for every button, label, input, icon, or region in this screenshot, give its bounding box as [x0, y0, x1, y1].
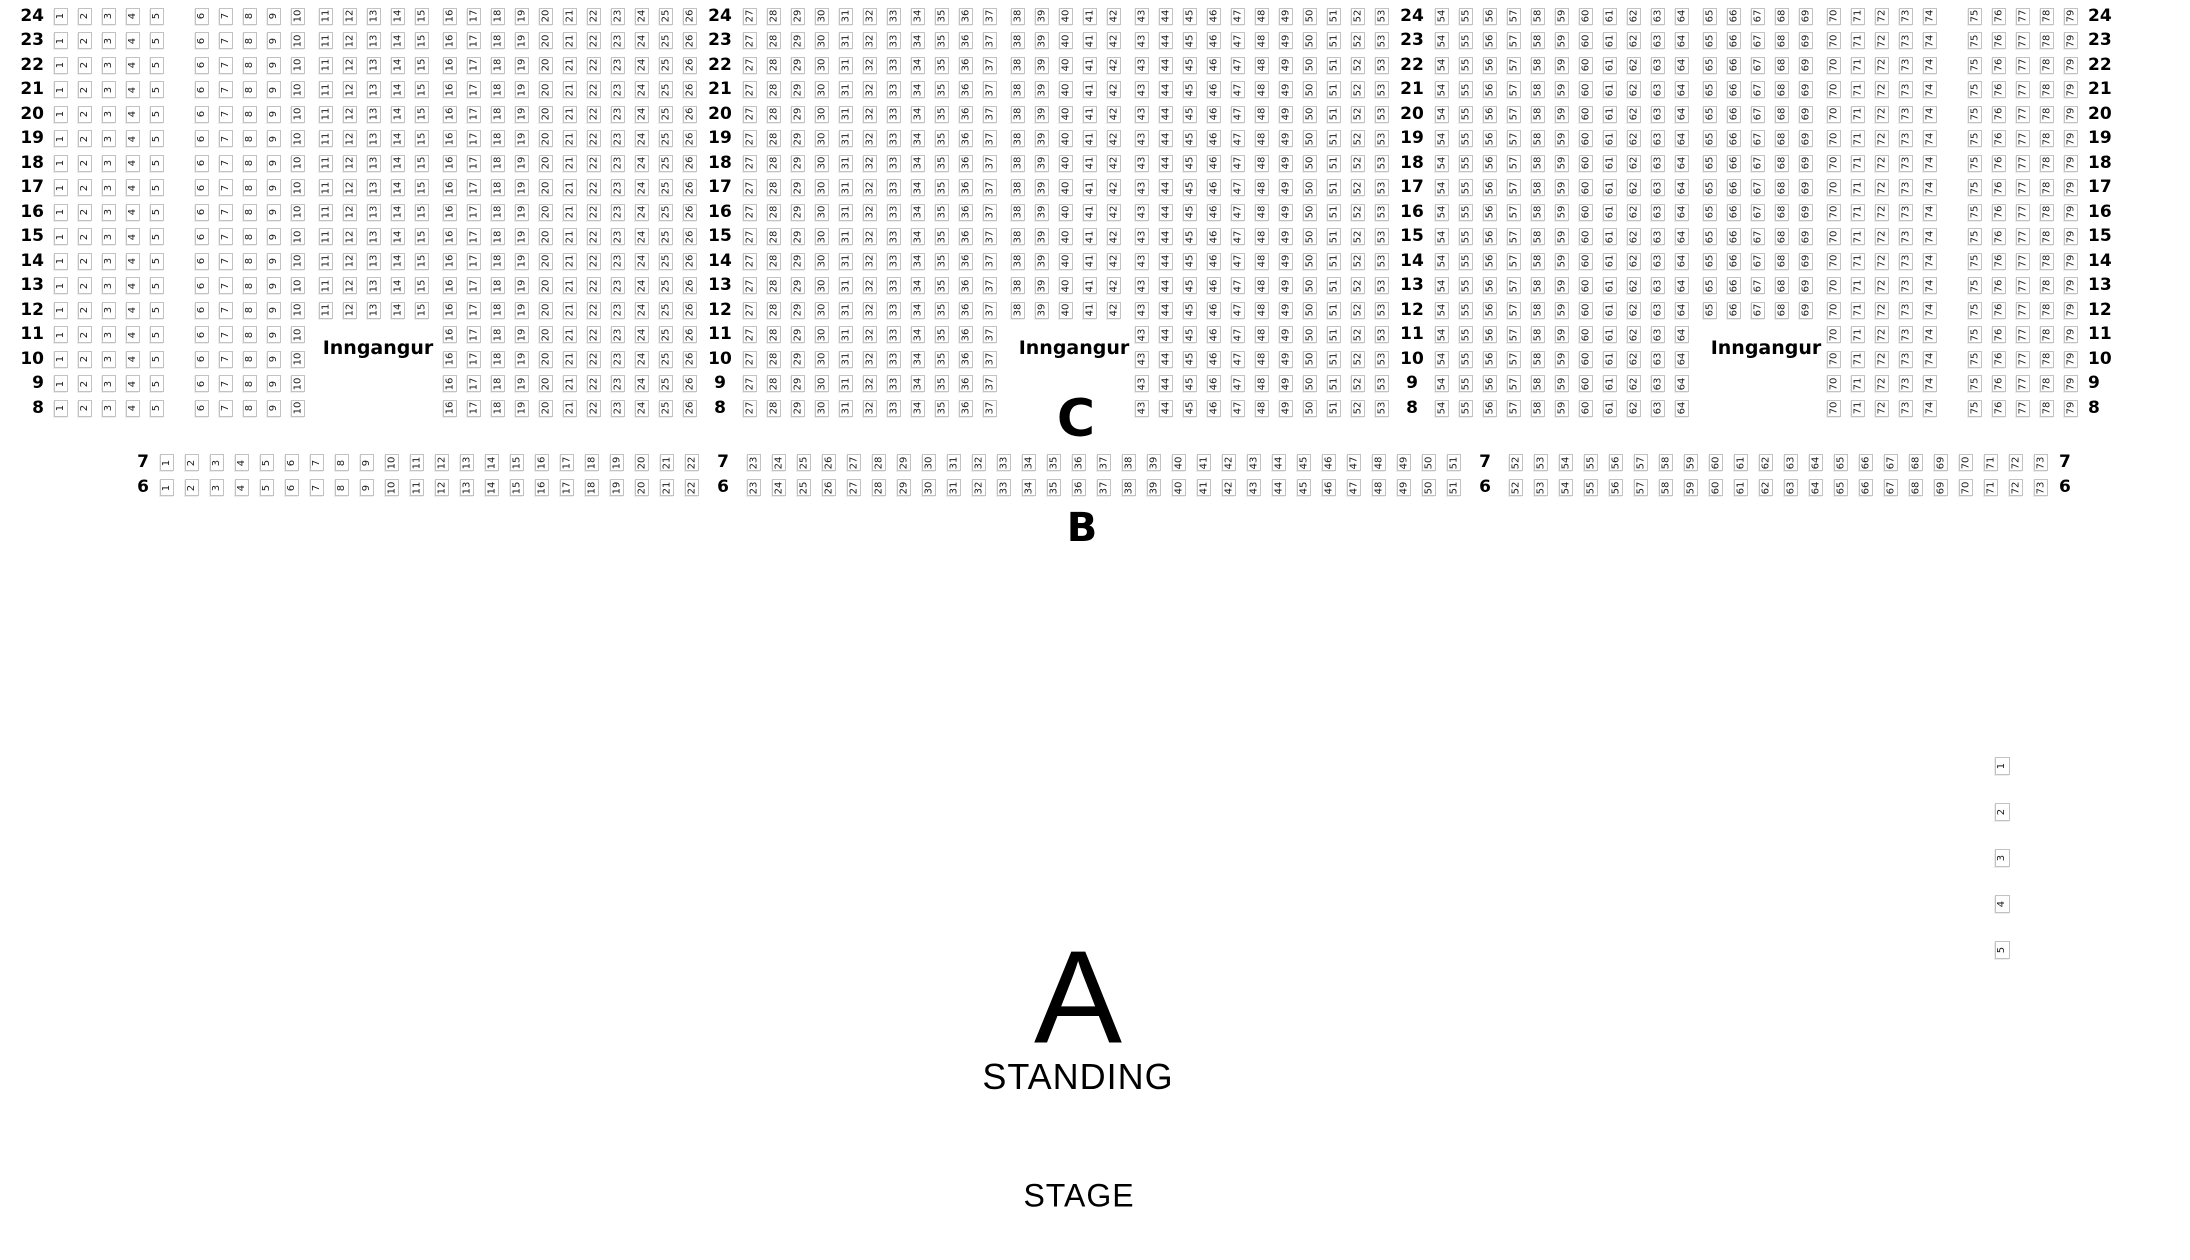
seat-18-35[interactable]: 35 [935, 155, 949, 172]
seat-22-78[interactable]: 78 [2040, 57, 2054, 74]
seat-21-19[interactable]: 19 [515, 81, 529, 98]
seat-22-66[interactable]: 66 [1727, 57, 1741, 74]
seat-15-35[interactable]: 35 [935, 228, 949, 245]
seat-7-61[interactable]: 61 [1734, 454, 1748, 471]
seat-9-74[interactable]: 74 [1923, 375, 1937, 392]
seat-20-44[interactable]: 44 [1159, 106, 1173, 123]
seat-23-43[interactable]: 43 [1135, 32, 1149, 49]
seat-16-56[interactable]: 56 [1483, 204, 1497, 221]
seat-8-30[interactable]: 30 [815, 400, 829, 417]
seat-23-11[interactable]: 11 [319, 32, 333, 49]
seat-15-41[interactable]: 41 [1083, 228, 1097, 245]
seat-12-28[interactable]: 28 [767, 302, 781, 319]
seat-6-53[interactable]: 53 [1534, 479, 1548, 496]
seat-7-30[interactable]: 30 [922, 454, 936, 471]
seat-22-3[interactable]: 3 [102, 57, 116, 74]
seat-19-21[interactable]: 21 [563, 130, 577, 147]
seat-12-21[interactable]: 21 [563, 302, 577, 319]
seat-6-46[interactable]: 46 [1322, 479, 1336, 496]
seat-11-2[interactable]: 2 [78, 326, 92, 343]
seat-17-6[interactable]: 6 [195, 179, 209, 196]
seat-13-66[interactable]: 66 [1727, 277, 1741, 294]
seat-12-19[interactable]: 19 [515, 302, 529, 319]
seat-17-60[interactable]: 60 [1579, 179, 1593, 196]
seat-13-73[interactable]: 73 [1899, 277, 1913, 294]
seat-20-48[interactable]: 48 [1255, 106, 1269, 123]
seat-14-76[interactable]: 76 [1992, 253, 2006, 270]
seat-13-15[interactable]: 15 [415, 277, 429, 294]
seat-17-41[interactable]: 41 [1083, 179, 1097, 196]
seat-15-75[interactable]: 75 [1968, 228, 1982, 245]
seat-19-9[interactable]: 9 [267, 130, 281, 147]
seat-9-24[interactable]: 24 [635, 375, 649, 392]
seat-10-25[interactable]: 25 [659, 351, 673, 368]
seat-9-53[interactable]: 53 [1375, 375, 1389, 392]
seat-22-79[interactable]: 79 [2064, 57, 2078, 74]
seat-7-37[interactable]: 37 [1097, 454, 1111, 471]
seat-6-58[interactable]: 58 [1659, 479, 1673, 496]
seat-23-13[interactable]: 13 [367, 32, 381, 49]
seat-13-79[interactable]: 79 [2064, 277, 2078, 294]
seat-24-8[interactable]: 8 [243, 8, 257, 25]
seat-21-53[interactable]: 53 [1375, 81, 1389, 98]
seat-18-5[interactable]: 5 [150, 155, 164, 172]
seat-8-18[interactable]: 18 [491, 400, 505, 417]
seat-19-23[interactable]: 23 [611, 130, 625, 147]
seat-14-73[interactable]: 73 [1899, 253, 1913, 270]
seat-14-9[interactable]: 9 [267, 253, 281, 270]
seat-11-78[interactable]: 78 [2040, 326, 2054, 343]
seat-17-35[interactable]: 35 [935, 179, 949, 196]
seat-9-60[interactable]: 60 [1579, 375, 1593, 392]
seat-9-76[interactable]: 76 [1992, 375, 2006, 392]
seat-6-45[interactable]: 45 [1297, 479, 1311, 496]
seat-10-20[interactable]: 20 [539, 351, 553, 368]
seat-21-47[interactable]: 47 [1231, 81, 1245, 98]
seat-15-46[interactable]: 46 [1207, 228, 1221, 245]
seat-14-53[interactable]: 53 [1375, 253, 1389, 270]
seat-15-67[interactable]: 67 [1751, 228, 1765, 245]
seat-7-40[interactable]: 40 [1172, 454, 1186, 471]
seat-18-21[interactable]: 21 [563, 155, 577, 172]
seat-19-20[interactable]: 20 [539, 130, 553, 147]
seat-16-19[interactable]: 19 [515, 204, 529, 221]
seat-7-19[interactable]: 19 [610, 454, 624, 471]
seat-13-20[interactable]: 20 [539, 277, 553, 294]
seat-8-74[interactable]: 74 [1923, 400, 1937, 417]
seat-17-27[interactable]: 27 [743, 179, 757, 196]
seat-22-1[interactable]: 1 [54, 57, 68, 74]
seat-19-59[interactable]: 59 [1555, 130, 1569, 147]
seat-10-18[interactable]: 18 [491, 351, 505, 368]
seat-12-77[interactable]: 77 [2016, 302, 2030, 319]
seat-18-63[interactable]: 63 [1651, 155, 1665, 172]
seat-9-75[interactable]: 75 [1968, 375, 1982, 392]
seat-6-68[interactable]: 68 [1909, 479, 1923, 496]
seat-22-2[interactable]: 2 [78, 57, 92, 74]
seat-8-63[interactable]: 63 [1651, 400, 1665, 417]
seat-10-63[interactable]: 63 [1651, 351, 1665, 368]
seat-6-13[interactable]: 13 [460, 479, 474, 496]
seat-6-7[interactable]: 7 [310, 479, 324, 496]
seat-24-33[interactable]: 33 [887, 8, 901, 25]
seat-15-79[interactable]: 79 [2064, 228, 2078, 245]
seat-11-1[interactable]: 1 [54, 326, 68, 343]
seat-11-72[interactable]: 72 [1875, 326, 1889, 343]
seat-13-14[interactable]: 14 [391, 277, 405, 294]
seat-17-50[interactable]: 50 [1303, 179, 1317, 196]
seat-22-18[interactable]: 18 [491, 57, 505, 74]
seat-23-62[interactable]: 62 [1627, 32, 1641, 49]
seat-14-72[interactable]: 72 [1875, 253, 1889, 270]
seat-16-74[interactable]: 74 [1923, 204, 1937, 221]
seat-18-30[interactable]: 30 [815, 155, 829, 172]
seat-8-25[interactable]: 25 [659, 400, 673, 417]
seat-24-21[interactable]: 21 [563, 8, 577, 25]
seat-24-29[interactable]: 29 [791, 8, 805, 25]
seat-17-18[interactable]: 18 [491, 179, 505, 196]
seat-8-51[interactable]: 51 [1327, 400, 1341, 417]
seat-24-16[interactable]: 16 [443, 8, 457, 25]
seat-8-57[interactable]: 57 [1507, 400, 1521, 417]
seat-7-49[interactable]: 49 [1397, 454, 1411, 471]
seat-11-36[interactable]: 36 [959, 326, 973, 343]
seat-20-46[interactable]: 46 [1207, 106, 1221, 123]
seat-17-52[interactable]: 52 [1351, 179, 1365, 196]
seat-16-73[interactable]: 73 [1899, 204, 1913, 221]
seat-22-12[interactable]: 12 [343, 57, 357, 74]
seat-10-50[interactable]: 50 [1303, 351, 1317, 368]
seat-21-63[interactable]: 63 [1651, 81, 1665, 98]
seat-20-67[interactable]: 67 [1751, 106, 1765, 123]
seat-11-37[interactable]: 37 [983, 326, 997, 343]
seat-8-79[interactable]: 79 [2064, 400, 2078, 417]
seat-22-73[interactable]: 73 [1899, 57, 1913, 74]
seat-22-19[interactable]: 19 [515, 57, 529, 74]
seat-17-70[interactable]: 70 [1827, 179, 1841, 196]
seat-15-26[interactable]: 26 [683, 228, 697, 245]
seat-7-2[interactable]: 2 [185, 454, 199, 471]
seat-17-76[interactable]: 76 [1992, 179, 2006, 196]
seat-19-64[interactable]: 64 [1675, 130, 1689, 147]
seat-16-53[interactable]: 53 [1375, 204, 1389, 221]
seat-8-27[interactable]: 27 [743, 400, 757, 417]
seat-14-41[interactable]: 41 [1083, 253, 1097, 270]
seat-20-33[interactable]: 33 [887, 106, 901, 123]
seat-7-58[interactable]: 58 [1659, 454, 1673, 471]
seat-17-59[interactable]: 59 [1555, 179, 1569, 196]
seat-12-1[interactable]: 1 [54, 302, 68, 319]
seat-22-59[interactable]: 59 [1555, 57, 1569, 74]
seat-14-17[interactable]: 17 [467, 253, 481, 270]
seat-16-10[interactable]: 10 [291, 204, 305, 221]
seat-12-42[interactable]: 42 [1107, 302, 1121, 319]
seat-14-78[interactable]: 78 [2040, 253, 2054, 270]
seat-15-74[interactable]: 74 [1923, 228, 1937, 245]
seat-16-4[interactable]: 4 [126, 204, 140, 221]
seat-17-10[interactable]: 10 [291, 179, 305, 196]
seat-18-18[interactable]: 18 [491, 155, 505, 172]
seat-9-10[interactable]: 10 [291, 375, 305, 392]
seat-19-60[interactable]: 60 [1579, 130, 1593, 147]
seat-20-24[interactable]: 24 [635, 106, 649, 123]
seat-19-26[interactable]: 26 [683, 130, 697, 147]
seat-20-52[interactable]: 52 [1351, 106, 1365, 123]
seat-22-6[interactable]: 6 [195, 57, 209, 74]
seat-8-31[interactable]: 31 [839, 400, 853, 417]
seat-11-61[interactable]: 61 [1603, 326, 1617, 343]
seat-24-24[interactable]: 24 [635, 8, 649, 25]
seat-20-42[interactable]: 42 [1107, 106, 1121, 123]
seat-17-25[interactable]: 25 [659, 179, 673, 196]
seat-23-38[interactable]: 38 [1011, 32, 1025, 49]
seat-11-73[interactable]: 73 [1899, 326, 1913, 343]
seat-10-58[interactable]: 58 [1531, 351, 1545, 368]
seat-23-57[interactable]: 57 [1507, 32, 1521, 49]
seat-18-33[interactable]: 33 [887, 155, 901, 172]
seat-6-43[interactable]: 43 [1247, 479, 1261, 496]
seat-10-16[interactable]: 16 [443, 351, 457, 368]
seat-23-20[interactable]: 20 [539, 32, 553, 49]
seat-8-70[interactable]: 70 [1827, 400, 1841, 417]
seat-21-6[interactable]: 6 [195, 81, 209, 98]
seat-22-47[interactable]: 47 [1231, 57, 1245, 74]
seat-24-19[interactable]: 19 [515, 8, 529, 25]
seat-9-27[interactable]: 27 [743, 375, 757, 392]
seat-10-10[interactable]: 10 [291, 351, 305, 368]
seat-10-79[interactable]: 79 [2064, 351, 2078, 368]
seat-18-28[interactable]: 28 [767, 155, 781, 172]
seat-14-77[interactable]: 77 [2016, 253, 2030, 270]
seat-6-65[interactable]: 65 [1834, 479, 1848, 496]
seat-16-28[interactable]: 28 [767, 204, 781, 221]
seat-6-14[interactable]: 14 [485, 479, 499, 496]
seat-14-67[interactable]: 67 [1751, 253, 1765, 270]
seat-6-29[interactable]: 29 [897, 479, 911, 496]
seat-7-44[interactable]: 44 [1272, 454, 1286, 471]
seat-13-64[interactable]: 64 [1675, 277, 1689, 294]
seat-11-60[interactable]: 60 [1579, 326, 1593, 343]
seat-22-13[interactable]: 13 [367, 57, 381, 74]
seat-24-40[interactable]: 40 [1059, 8, 1073, 25]
seat-9-2[interactable]: 2 [78, 375, 92, 392]
seat-18-54[interactable]: 54 [1435, 155, 1449, 172]
seat-18-8[interactable]: 8 [243, 155, 257, 172]
seat-17-47[interactable]: 47 [1231, 179, 1245, 196]
seat-6-50[interactable]: 50 [1422, 479, 1436, 496]
seat-23-74[interactable]: 74 [1923, 32, 1937, 49]
seat-17-31[interactable]: 31 [839, 179, 853, 196]
seat-8-28[interactable]: 28 [767, 400, 781, 417]
seat-15-25[interactable]: 25 [659, 228, 673, 245]
seat-12-60[interactable]: 60 [1579, 302, 1593, 319]
seat-6-61[interactable]: 61 [1734, 479, 1748, 496]
seat-17-66[interactable]: 66 [1727, 179, 1741, 196]
seat-22-14[interactable]: 14 [391, 57, 405, 74]
seat-23-18[interactable]: 18 [491, 32, 505, 49]
seat-12-41[interactable]: 41 [1083, 302, 1097, 319]
seat-7-33[interactable]: 33 [997, 454, 1011, 471]
seat-15-51[interactable]: 51 [1327, 228, 1341, 245]
seat-8-75[interactable]: 75 [1968, 400, 1982, 417]
seat-19-55[interactable]: 55 [1459, 130, 1473, 147]
seat-9-46[interactable]: 46 [1207, 375, 1221, 392]
seat-24-41[interactable]: 41 [1083, 8, 1097, 25]
seat-19-68[interactable]: 68 [1775, 130, 1789, 147]
seat-14-52[interactable]: 52 [1351, 253, 1365, 270]
seat-11-31[interactable]: 31 [839, 326, 853, 343]
seat-9-64[interactable]: 64 [1675, 375, 1689, 392]
seat-11-6[interactable]: 6 [195, 326, 209, 343]
seat-18-20[interactable]: 20 [539, 155, 553, 172]
seat-16-68[interactable]: 68 [1775, 204, 1789, 221]
seat-21-25[interactable]: 25 [659, 81, 673, 98]
seat-20-56[interactable]: 56 [1483, 106, 1497, 123]
seat-9-63[interactable]: 63 [1651, 375, 1665, 392]
seat-6-22[interactable]: 22 [685, 479, 699, 496]
seat-15-2[interactable]: 2 [78, 228, 92, 245]
seat-22-64[interactable]: 64 [1675, 57, 1689, 74]
seat-7-1[interactable]: 1 [160, 454, 174, 471]
seat-6-33[interactable]: 33 [997, 479, 1011, 496]
seat-10-61[interactable]: 61 [1603, 351, 1617, 368]
seat-24-45[interactable]: 45 [1183, 8, 1197, 25]
seat-8-7[interactable]: 7 [219, 400, 233, 417]
seat-12-31[interactable]: 31 [839, 302, 853, 319]
seat-17-34[interactable]: 34 [911, 179, 925, 196]
seat-15-78[interactable]: 78 [2040, 228, 2054, 245]
seat-17-3[interactable]: 3 [102, 179, 116, 196]
seat-6-18[interactable]: 18 [585, 479, 599, 496]
seat-13-49[interactable]: 49 [1279, 277, 1293, 294]
seat-11-43[interactable]: 43 [1135, 326, 1149, 343]
seat-21-9[interactable]: 9 [267, 81, 281, 98]
seat-9-21[interactable]: 21 [563, 375, 577, 392]
seat-13-32[interactable]: 32 [863, 277, 877, 294]
seat-9-9[interactable]: 9 [267, 375, 281, 392]
seat-7-22[interactable]: 22 [685, 454, 699, 471]
seat-21-38[interactable]: 38 [1011, 81, 1025, 98]
seat-17-20[interactable]: 20 [539, 179, 553, 196]
seat-19-4[interactable]: 4 [126, 130, 140, 147]
seat-6-35[interactable]: 35 [1047, 479, 1061, 496]
seat-14-4[interactable]: 4 [126, 253, 140, 270]
seat-14-74[interactable]: 74 [1923, 253, 1937, 270]
seat-23-42[interactable]: 42 [1107, 32, 1121, 49]
seat-23-78[interactable]: 78 [2040, 32, 2054, 49]
seat-18-75[interactable]: 75 [1968, 155, 1982, 172]
seat-15-48[interactable]: 48 [1255, 228, 1269, 245]
seat-24-72[interactable]: 72 [1875, 8, 1889, 25]
seat-22-69[interactable]: 69 [1799, 57, 1813, 74]
seat-23-75[interactable]: 75 [1968, 32, 1982, 49]
seat-18-73[interactable]: 73 [1899, 155, 1913, 172]
seat-22-35[interactable]: 35 [935, 57, 949, 74]
seat-16-30[interactable]: 30 [815, 204, 829, 221]
seat-14-37[interactable]: 37 [983, 253, 997, 270]
seat-11-74[interactable]: 74 [1923, 326, 1937, 343]
seat-20-54[interactable]: 54 [1435, 106, 1449, 123]
seat-21-71[interactable]: 71 [1851, 81, 1865, 98]
seat-8-72[interactable]: 72 [1875, 400, 1889, 417]
seat-11-21[interactable]: 21 [563, 326, 577, 343]
seat-15-24[interactable]: 24 [635, 228, 649, 245]
seat-8-4[interactable]: 4 [126, 400, 140, 417]
seat-18-25[interactable]: 25 [659, 155, 673, 172]
seat-9-22[interactable]: 22 [587, 375, 601, 392]
seat-6-21[interactable]: 21 [660, 479, 674, 496]
seat-13-76[interactable]: 76 [1992, 277, 2006, 294]
seat-21-16[interactable]: 16 [443, 81, 457, 98]
seat-11-25[interactable]: 25 [659, 326, 673, 343]
seat-11-57[interactable]: 57 [1507, 326, 1521, 343]
seat-8-43[interactable]: 43 [1135, 400, 1149, 417]
seat-9-79[interactable]: 79 [2064, 375, 2078, 392]
seat-9-56[interactable]: 56 [1483, 375, 1497, 392]
seat-14-59[interactable]: 59 [1555, 253, 1569, 270]
seat-10-76[interactable]: 76 [1992, 351, 2006, 368]
seat-17-77[interactable]: 77 [2016, 179, 2030, 196]
seat-22-76[interactable]: 76 [1992, 57, 2006, 74]
seat-12-48[interactable]: 48 [1255, 302, 1269, 319]
seat-7-14[interactable]: 14 [485, 454, 499, 471]
seat-18-71[interactable]: 71 [1851, 155, 1865, 172]
seat-24-60[interactable]: 60 [1579, 8, 1593, 25]
seat-12-52[interactable]: 52 [1351, 302, 1365, 319]
seat-24-65[interactable]: 65 [1703, 8, 1717, 25]
seat-15-14[interactable]: 14 [391, 228, 405, 245]
seat-22-74[interactable]: 74 [1923, 57, 1937, 74]
seat-17-58[interactable]: 58 [1531, 179, 1545, 196]
seat-18-19[interactable]: 19 [515, 155, 529, 172]
seat-8-19[interactable]: 19 [515, 400, 529, 417]
seat-8-26[interactable]: 26 [683, 400, 697, 417]
seat-21-34[interactable]: 34 [911, 81, 925, 98]
seat-17-39[interactable]: 39 [1035, 179, 1049, 196]
seat-10-33[interactable]: 33 [887, 351, 901, 368]
seat-side-3[interactable]: 3 [1995, 849, 2010, 867]
seat-7-72[interactable]: 72 [2009, 454, 2023, 471]
seat-12-45[interactable]: 45 [1183, 302, 1197, 319]
seat-6-11[interactable]: 11 [410, 479, 424, 496]
seat-7-51[interactable]: 51 [1447, 454, 1461, 471]
seat-19-14[interactable]: 14 [391, 130, 405, 147]
seat-20-10[interactable]: 10 [291, 106, 305, 123]
seat-24-70[interactable]: 70 [1827, 8, 1841, 25]
seat-6-23[interactable]: 23 [747, 479, 761, 496]
seat-21-67[interactable]: 67 [1751, 81, 1765, 98]
seat-24-59[interactable]: 59 [1555, 8, 1569, 25]
seat-21-77[interactable]: 77 [2016, 81, 2030, 98]
seat-23-71[interactable]: 71 [1851, 32, 1865, 49]
seat-23-9[interactable]: 9 [267, 32, 281, 49]
seat-12-75[interactable]: 75 [1968, 302, 1982, 319]
seat-21-39[interactable]: 39 [1035, 81, 1049, 98]
seat-15-76[interactable]: 76 [1992, 228, 2006, 245]
seat-18-38[interactable]: 38 [1011, 155, 1025, 172]
seat-22-25[interactable]: 25 [659, 57, 673, 74]
seat-18-29[interactable]: 29 [791, 155, 805, 172]
seat-13-18[interactable]: 18 [491, 277, 505, 294]
seat-18-32[interactable]: 32 [863, 155, 877, 172]
seat-21-62[interactable]: 62 [1627, 81, 1641, 98]
seat-9-47[interactable]: 47 [1231, 375, 1245, 392]
seat-6-44[interactable]: 44 [1272, 479, 1286, 496]
seat-19-46[interactable]: 46 [1207, 130, 1221, 147]
seat-21-74[interactable]: 74 [1923, 81, 1937, 98]
seat-23-65[interactable]: 65 [1703, 32, 1717, 49]
seat-6-15[interactable]: 15 [510, 479, 524, 496]
